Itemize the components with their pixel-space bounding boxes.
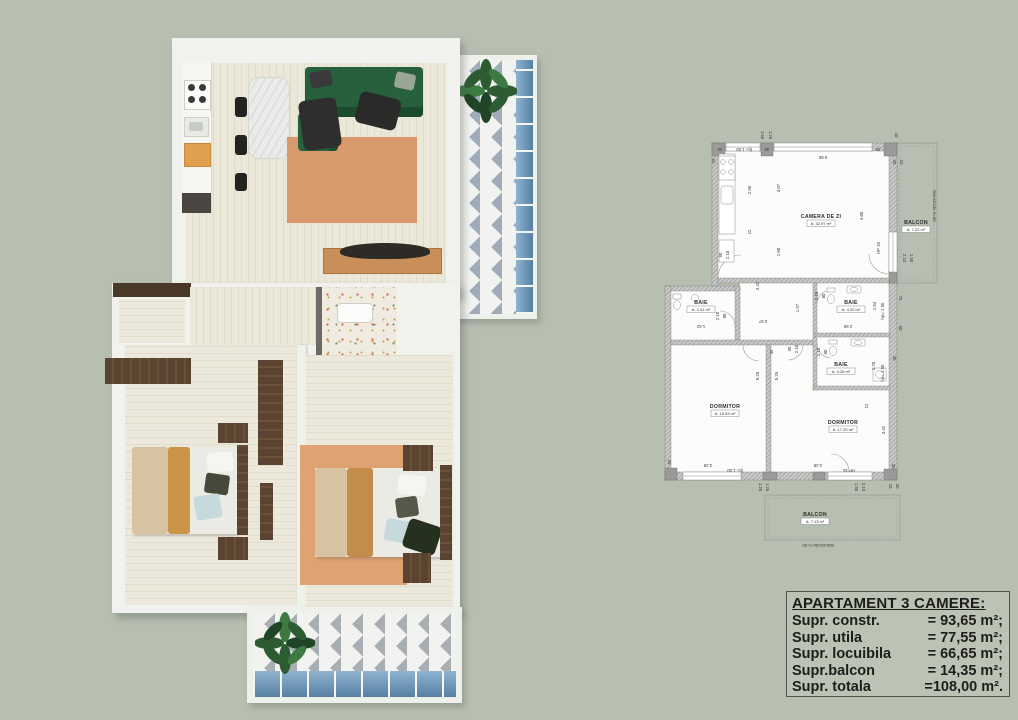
dimension-label: 20	[895, 484, 900, 489]
info-value: = 93,65 m²;	[928, 613, 1003, 630]
dimension-label: 2.10	[816, 347, 821, 356]
dimension-label: 1.70	[871, 361, 876, 370]
dimension-label: 2.10	[814, 291, 819, 300]
floor-plan-2d: CAMERA DE ZIA: 32.97 m²BAIEA: 2.41 m²BAI…	[663, 128, 940, 548]
dimension-label: hp= 1.50	[880, 302, 885, 319]
dimension-label: 5.85	[818, 155, 827, 160]
dimension-label: 12	[747, 229, 752, 234]
kitchen-stove	[184, 80, 211, 110]
info-value: = 66,65 m²;	[928, 646, 1003, 663]
kitchen-sink	[184, 117, 209, 137]
apartment-info-box: APARTAMENT 3 CAMERE: Supr. constr. = 93,…	[786, 591, 1010, 697]
entry-hall-floor	[119, 299, 185, 343]
bed-blanket	[315, 468, 347, 557]
room-area: A: 7.13 m²	[806, 519, 825, 524]
dimension-label: 80	[823, 349, 828, 354]
room-name: CAMERA DE ZI	[801, 214, 842, 220]
room-name: BAIE	[844, 300, 858, 306]
nightstand	[403, 445, 433, 471]
dimension-label: 1.20	[758, 483, 763, 492]
info-title: APARTAMENT 3 CAMERE:	[792, 594, 1003, 613]
dimension-label: 25	[667, 460, 672, 465]
dimension-label: 1.97	[795, 303, 800, 312]
room-label: BALCONA: 7.22 m²	[902, 220, 930, 233]
dimension-label: 1.50	[854, 483, 859, 492]
dimension-label: 2.87	[758, 319, 767, 324]
info-label: Supr.balcon	[792, 663, 875, 680]
floor-plan-2d-drawing: CAMERA DE ZIA: 32.97 m²BAIEA: 2.41 m²BAI…	[663, 128, 940, 548]
room-name: DORMITOR	[710, 404, 740, 410]
railing-label: Balustrada H=90	[802, 543, 834, 548]
dimension-label: 2.10	[902, 254, 907, 263]
dimension-label: 1.60	[776, 247, 781, 256]
dimension-label: fp= 1.00	[736, 147, 752, 152]
dimension-label: 1.50	[909, 254, 914, 263]
bed-blanket	[132, 447, 168, 534]
bed-pillow	[193, 493, 223, 521]
dining-chair	[235, 173, 247, 191]
kitchen-cabinet-orange	[184, 143, 211, 167]
dimension-label: 30	[891, 464, 896, 469]
info-label: Supr. utila	[792, 630, 862, 647]
bathroom-sink	[337, 303, 373, 323]
dimension-label: 5.25	[755, 371, 760, 380]
floor-plan-page: CAMERA DE ZIA: 32.97 m²BAIEA: 2.41 m²BAI…	[0, 0, 1018, 720]
dimension-label: 12	[864, 403, 869, 408]
dimension-label: 10	[888, 484, 893, 489]
info-value: = 77,55 m²;	[928, 630, 1003, 647]
bed-pillow	[395, 496, 420, 519]
entry-door-dark	[113, 283, 191, 297]
dimension-label: 3.28	[703, 463, 712, 468]
plant	[255, 611, 315, 675]
dimension-label: 1.50	[760, 131, 765, 140]
media-console	[260, 483, 273, 540]
room-area: A: 17.20 m²	[833, 427, 854, 432]
dimension-label: 1.94	[872, 301, 877, 310]
dimension-label: 2.55	[843, 324, 852, 329]
dimension-label: 25	[711, 158, 716, 163]
room-name: BALCON	[904, 220, 928, 226]
dimension-label: 4.80	[859, 211, 864, 220]
sofa-throw-blanket	[298, 97, 343, 152]
dining-chair	[235, 135, 247, 155]
dimension-label: HP 15	[842, 468, 854, 473]
info-value: = 14,35 m²;	[928, 663, 1003, 680]
dimension-label: 75	[898, 296, 903, 301]
nightstand	[218, 537, 248, 560]
dimension-label: 1.62	[696, 324, 705, 329]
info-label: Supr. totala	[792, 679, 871, 696]
info-row: Supr. utila = 77,55 m²;	[792, 630, 1003, 647]
dimension-label: 3.07	[776, 183, 781, 192]
room-name: BAIE	[694, 300, 708, 306]
dimension-label: 30	[875, 147, 880, 152]
dimension-label: 80	[821, 293, 826, 298]
dimension-label: 1.25	[768, 131, 773, 140]
dimension-label: hp= 1.50	[880, 364, 885, 381]
dimension-label: 10	[899, 160, 904, 165]
bed-pillow	[397, 474, 427, 497]
dimension-label: 1.25	[765, 483, 770, 492]
dimension-label: 5.25	[774, 371, 779, 380]
dimension-label: 2.10	[715, 311, 720, 320]
room-name: BAIE	[834, 362, 848, 368]
info-label: Supr. constr.	[792, 613, 880, 630]
floor-plan-3d-render	[55, 25, 535, 703]
dimension-label: 3.42	[755, 281, 760, 290]
room-area: A: 4.28 m²	[832, 369, 851, 374]
bed-headboard	[440, 465, 452, 560]
nightstand	[403, 553, 431, 583]
dimension-label: 60	[898, 326, 903, 331]
dimension-label: 4.28	[813, 463, 822, 468]
bed-pillow	[206, 451, 234, 474]
railing-label: Balustrada H=90	[932, 190, 937, 222]
dining-table	[248, 77, 290, 159]
media-console	[258, 360, 283, 465]
dimension-label: 30	[717, 147, 722, 152]
info-value: =108,00 m².	[924, 679, 1003, 696]
dimension-label: 3.42	[881, 425, 886, 434]
bed-blanket	[347, 468, 373, 557]
room-label: DORMITORA: 17.20 m²	[828, 420, 858, 433]
room-area: A: 4.20 m²	[842, 307, 861, 312]
dimension-label: 30	[892, 160, 897, 165]
dimension-label: 2.95	[747, 185, 752, 194]
dining-chair	[235, 97, 247, 117]
room-area: A: 2.41 m²	[692, 307, 711, 312]
plan-balcony-bottom	[765, 495, 900, 540]
bed-pillow	[204, 472, 231, 495]
info-row: Supr. totala =108,00 m².	[792, 679, 1003, 696]
info-row: Supr. locuibila = 66,65 m²;	[792, 646, 1003, 663]
info-row: Supr. constr. = 93,65 m²;	[792, 613, 1003, 630]
room-area: A: 7.22 m²	[907, 227, 926, 232]
dimension-label: 90	[787, 346, 792, 351]
bed-headboard	[237, 445, 248, 535]
dimension-label: 10	[894, 133, 899, 138]
dimension-label: 49	[769, 349, 774, 354]
room-name: BALCON	[803, 512, 827, 518]
room-label: BALCONA: 7.13 m²	[801, 512, 829, 525]
nightstand	[218, 423, 248, 443]
balcony-glass-railing	[516, 60, 533, 314]
dimension-label: HP 15	[876, 241, 881, 253]
dimension-label: 30	[892, 356, 897, 361]
hallway-floor	[190, 287, 320, 345]
wardrobe-dark	[105, 358, 191, 384]
room-label: DORMITORA: 16.53 m²	[710, 404, 740, 417]
info-row: Supr.balcon = 14,35 m²;	[792, 663, 1003, 680]
plan-kitchen-fixtures	[719, 154, 735, 262]
dimension-label: 2.10	[861, 483, 866, 492]
bed-blanket	[168, 447, 190, 534]
info-label: Supr. locuibila	[792, 646, 891, 663]
dimension-label: 90	[718, 252, 723, 257]
dimension-label: fp= 1.00	[727, 468, 743, 473]
dimension-label: 30	[764, 147, 769, 152]
room-name: DORMITOR	[828, 420, 858, 426]
console-decor-bowl	[340, 243, 430, 259]
dimension-label: 2.10	[725, 250, 730, 259]
kitchen-dark-cabinet	[182, 193, 211, 213]
dimension-label: 2.10	[794, 344, 799, 353]
room-area: A: 16.53 m²	[715, 411, 736, 416]
plant	[455, 58, 517, 124]
room-area: A: 32.97 m²	[811, 221, 832, 226]
dimension-label: 80	[722, 313, 727, 318]
